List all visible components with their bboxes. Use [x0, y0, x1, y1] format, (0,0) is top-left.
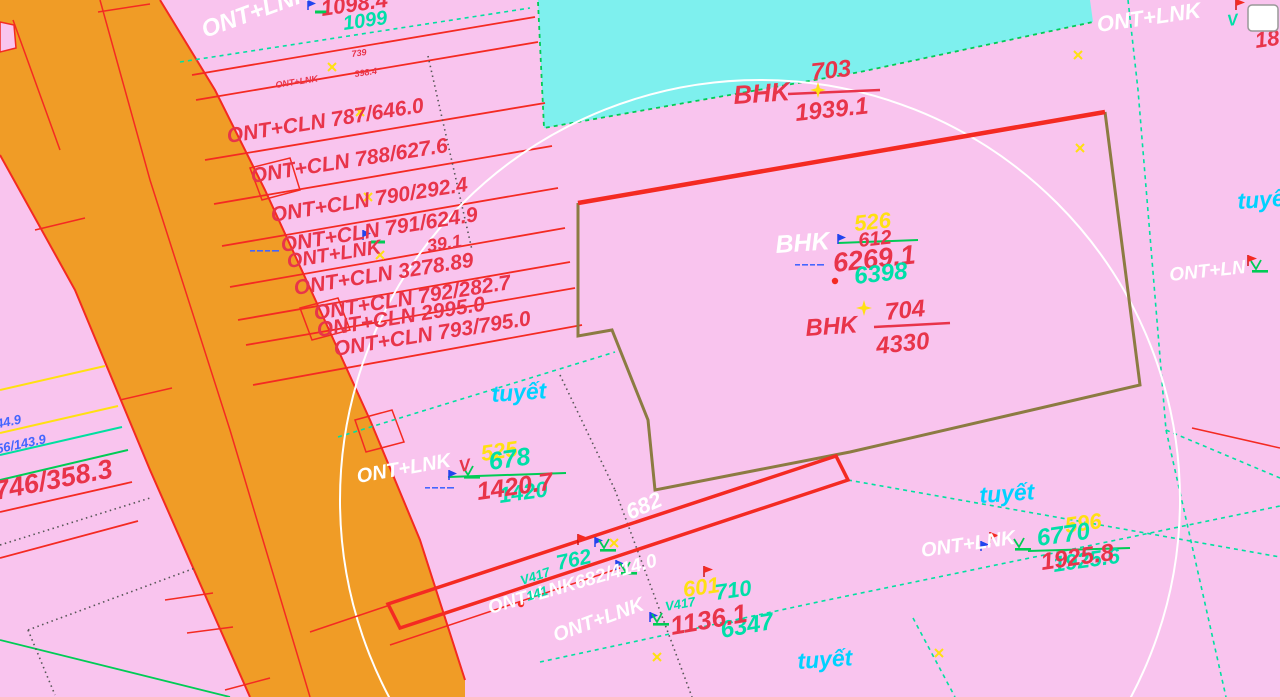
overlay-box[interactable]: [1248, 5, 1278, 31]
corner-notch-parcel: [0, 22, 16, 52]
label-num-703: 703: [810, 55, 853, 86]
label-bhk-center: BHK: [774, 227, 832, 259]
label-num-704: 704: [884, 295, 927, 326]
label-bhk-704: BHK: [805, 311, 860, 342]
label-tuyet-4: tuyết: [1237, 184, 1280, 214]
label-num-6398: 6398: [853, 257, 910, 290]
map-viewport[interactable]: ONT+LNK1098.41099ONT+LNK739398.4ONT+CLN …: [0, 0, 1280, 697]
dot-red-marker: [832, 278, 838, 284]
label-num-4330: 4330: [874, 327, 932, 360]
label-tuyet-1: tuyết: [491, 377, 549, 407]
label-strip739-num: 739: [351, 47, 367, 59]
label-tuyet-2: tuyết: [979, 478, 1037, 508]
label-bhk-703: BHK: [732, 76, 793, 110]
label-tuyet-3: tuyết: [797, 644, 855, 674]
cadastral-map-canvas[interactable]: ONT+LNK1098.41099ONT+LNK739398.4ONT+CLN …: [0, 0, 1280, 697]
